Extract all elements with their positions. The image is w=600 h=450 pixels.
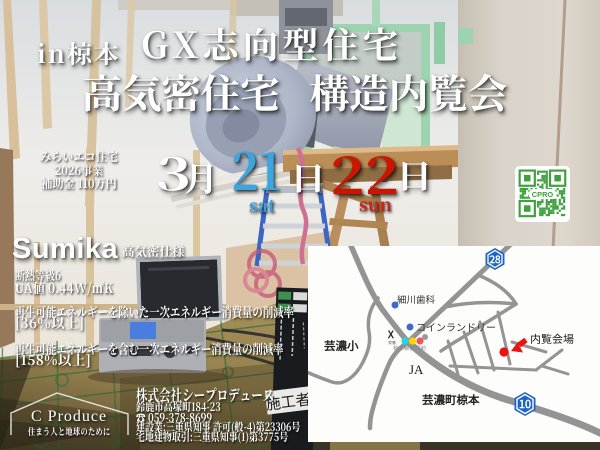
svg-text:芸濃町椋本: 芸濃町椋本 [422,392,480,408]
svg-text:芸濃小: 芸濃小 [324,338,359,354]
svg-text:コインランドリー: コインランドリー [416,319,496,334]
svg-text:28: 28 [489,251,501,266]
svg-text:椋本郵便局前: 椋本郵便局前 [393,344,427,352]
svg-text:細川歯科: 細川歯科 [397,292,436,306]
svg-text:10: 10 [519,396,531,412]
svg-text:JA: JA [409,362,424,377]
svg-text:CPRO: CPRO [532,190,554,199]
svg-text:X: X [387,326,394,341]
svg-text:内覧会場: 内覧会場 [530,331,574,347]
